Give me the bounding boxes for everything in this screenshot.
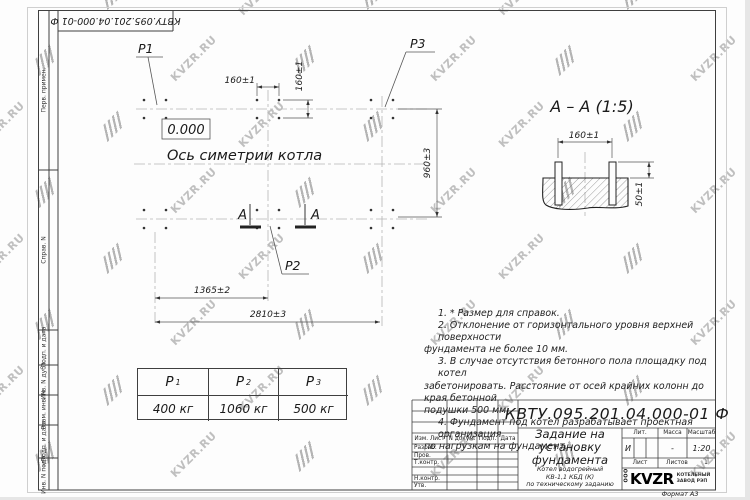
drawing-sheet: KVZR.RUKVZR.RUKVZR.RUKVZR.RUKVZR.RUKVZR.…: [0, 0, 750, 500]
tb-sheets-label: Листов: [666, 460, 688, 466]
section-letter-left: А: [237, 208, 247, 223]
logo-ooo-text: ООО: [624, 475, 630, 482]
load-table-header-p2: P2: [208, 369, 278, 395]
tb-col-sign: Подп.: [477, 433, 498, 444]
dim-2810-bottom: 2810±3: [250, 310, 286, 320]
tb-col-date: Дата: [498, 433, 518, 444]
note-line: 3. В случае отсутствия бетонного пола пл…: [424, 356, 723, 380]
subtitle-line-1: Котел водогрейный: [518, 466, 622, 474]
tb-row-razrab: Разраб.: [414, 445, 437, 451]
margin-label-sprav-n: Справ. N: [41, 236, 48, 263]
dim-160-section: 160±1: [569, 131, 599, 141]
note-line: 1. * Размер для справок.: [424, 308, 723, 320]
section-view: [543, 162, 628, 209]
section-dimensions: [558, 138, 654, 178]
symmetry-axis-label: Ось симетрии котла: [167, 148, 322, 164]
load-table-header-p1: P1: [138, 369, 208, 395]
tb-scale-header: Масштаб: [687, 428, 716, 438]
section-view-title: А – А (1:5): [549, 97, 633, 116]
tb-sheets-value: 1: [704, 460, 708, 466]
tb-row-nkontr: Н.контр.: [414, 476, 440, 482]
format-label: Формат А3: [648, 490, 712, 498]
kvzr-logo: KVZR: [630, 470, 674, 488]
p2-subscript: 2: [246, 378, 251, 387]
tb-col-doc: N докум.: [447, 433, 477, 444]
logo-desc-line-1: КОТЕЛЬНЫЙ: [677, 473, 711, 478]
dim-160-top-vertical: 160±1: [295, 61, 305, 91]
margin-label-inv-n-podl: Инв. N подл.: [41, 454, 48, 494]
p1-subscript: 1: [176, 378, 181, 387]
tb-sheets-cell: Листов 1: [658, 458, 716, 468]
tb-scale-value: 1:20: [687, 438, 716, 458]
tb-row-tkontr: Т.контр.: [414, 460, 439, 466]
load-table-value-p3: 500 кг: [278, 395, 348, 421]
logo-description: КОТЕЛЬНЫЙ ЗАВОД РЭП: [677, 473, 711, 484]
section-cut-marks: [240, 204, 316, 227]
load-label-p1: P1: [138, 41, 154, 56]
tb-mass-value: -: [658, 438, 687, 458]
p3-symbol: P: [306, 374, 314, 390]
tb-row-utv: Утв.: [414, 483, 426, 489]
tb-mass-header: Масса: [658, 428, 687, 438]
top-stamp-doc-number: КВТУ.095.201.04.000-01 Ф: [58, 10, 173, 31]
load-table-value-p2: 1060 кг: [208, 395, 278, 421]
load-label-p3: P3: [410, 36, 426, 51]
dim-50-section: 50±1: [635, 182, 645, 207]
dim-1365-bottom: 1365±2: [194, 286, 230, 296]
title-block-title: Задание на установку фундамента: [518, 428, 622, 468]
load-label-p2: P2: [285, 258, 301, 273]
load-table-value-p1: 400 кг: [138, 395, 208, 421]
subtitle-line-3: по техническому заданию: [518, 481, 622, 489]
margin-label-perv-primen: Перв. примен.: [41, 67, 48, 112]
load-table: P1 P2 P3 400 кг 1060 кг 500 кг: [137, 368, 347, 420]
note-line: 2. Отклонение от горизонтального уровня …: [424, 320, 723, 344]
tb-col-izm-list: Изм. Лист: [412, 433, 447, 444]
company-logo: ООО KVZR КОТЕЛЬНЫЙ ЗАВОД РЭП: [623, 468, 716, 489]
p3-subscript: 3: [316, 378, 321, 387]
tb-row-prov: Пров.: [414, 453, 431, 459]
logo-desc-line-2: ЗАВОД РЭП: [677, 479, 711, 484]
tb-sheet-label: Лист: [622, 458, 658, 468]
tb-lit-value: И: [622, 438, 634, 458]
title-block-doc-number: КВТУ.095.201.04.000-01 Ф: [518, 401, 716, 426]
dim-160-top-horizontal: 160±1: [225, 76, 255, 86]
p1-symbol: P: [165, 374, 173, 390]
p2-symbol: P: [236, 374, 244, 390]
note-line: фундамента не более 10 мм.: [424, 344, 723, 356]
tb-lit-header: Лит.: [622, 428, 658, 438]
subtitle-line-2: КВ-1,1 КБД (К): [518, 474, 622, 482]
dim-960-right: 960±3: [423, 148, 433, 179]
level-mark-value: 0.000: [167, 123, 204, 138]
title-block-subtitle: Котел водогрейный КВ-1,1 КБД (К) по техн…: [518, 466, 622, 489]
load-table-header-p3: P3: [278, 369, 348, 395]
section-letter-right: А: [310, 208, 320, 223]
